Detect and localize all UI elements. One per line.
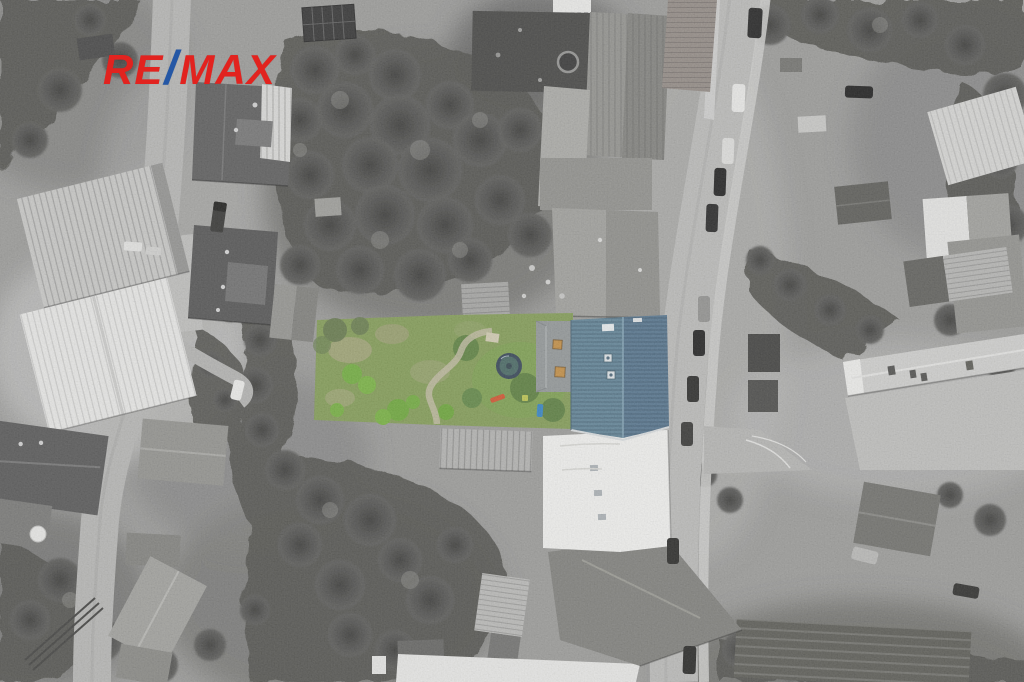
aerial-property-photo: RE/MAX <box>0 0 1024 682</box>
aerial-scene <box>0 0 1024 682</box>
remax-logo: RE/MAX <box>103 44 276 91</box>
logo-max: MAX <box>179 46 275 93</box>
photo-grain <box>0 0 1024 682</box>
logo-slash: / <box>164 41 178 94</box>
logo-re: RE <box>103 46 163 93</box>
